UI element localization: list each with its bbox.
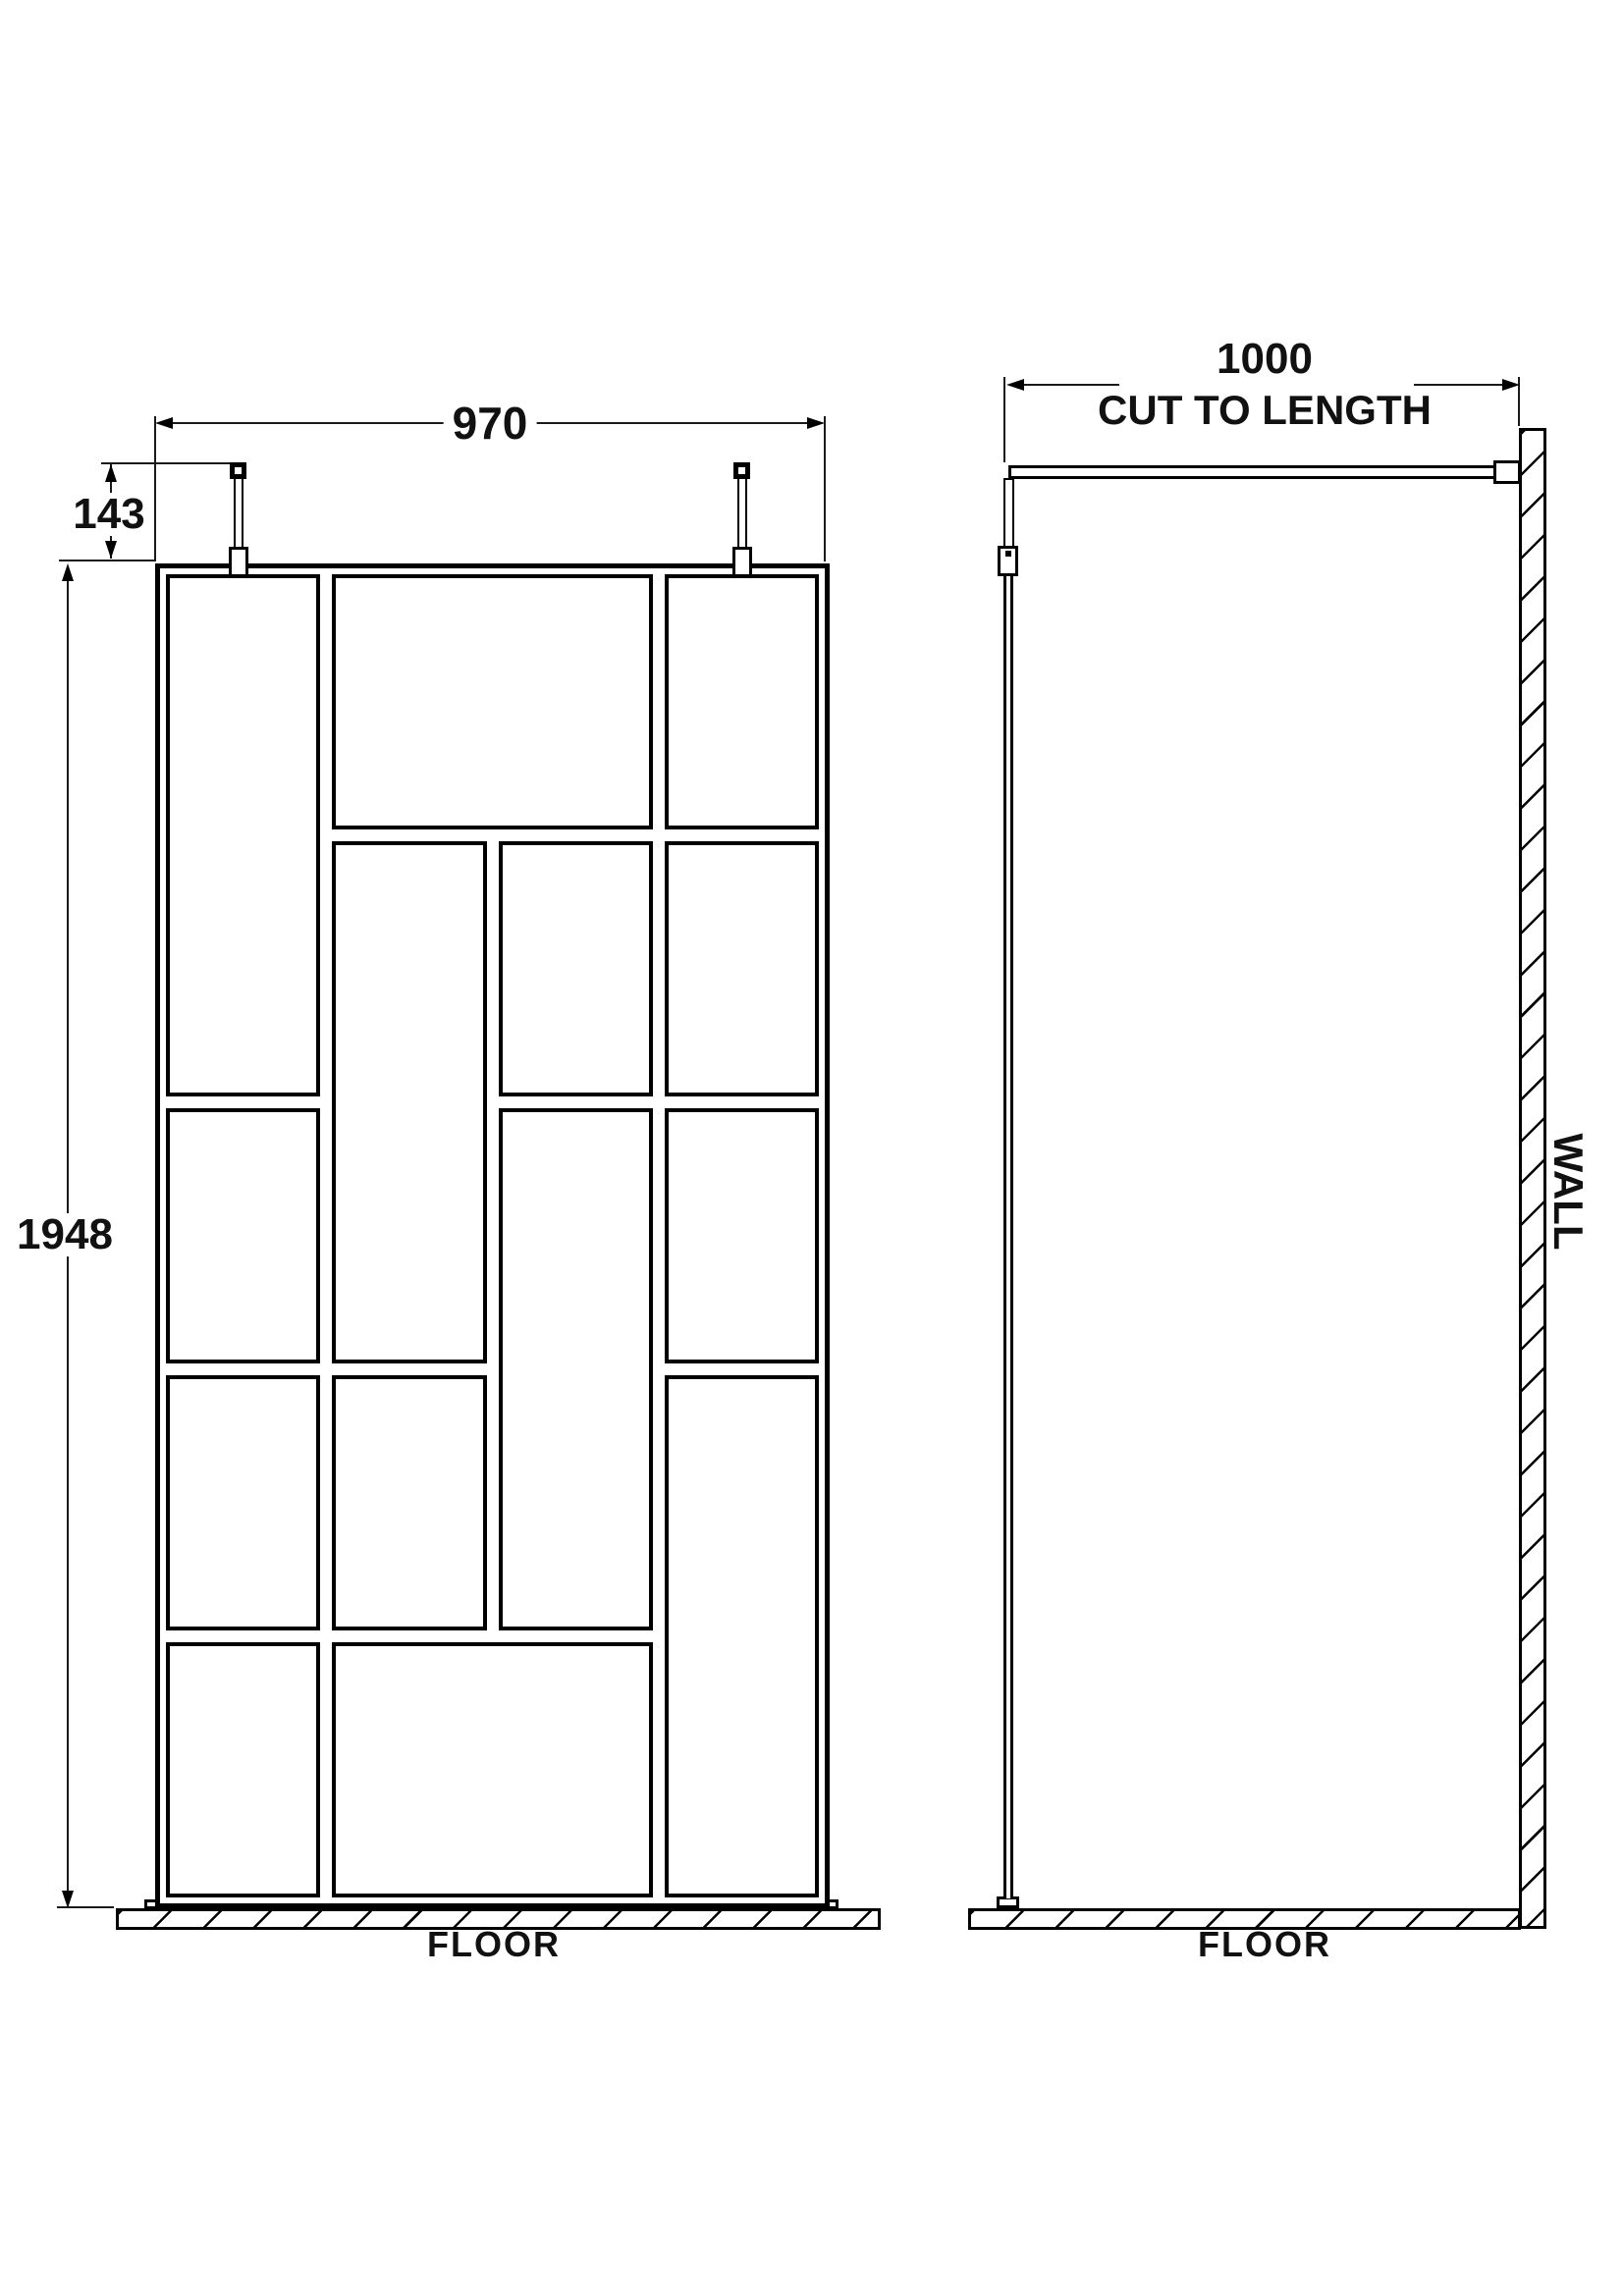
glass-pane	[332, 841, 486, 1363]
dim-1948-arrow-up-icon	[62, 563, 74, 581]
right-post-shaft	[737, 477, 747, 550]
glass-pane	[665, 574, 819, 829]
dim-970-arrow-left-icon	[155, 417, 173, 429]
dim-1948-label: 1948	[13, 1213, 117, 1256]
dim-970-label: 970	[444, 400, 537, 446]
pane-grid	[160, 568, 825, 1903]
glass-edge-profile	[1003, 575, 1013, 1898]
cut-to-length-label: CUT TO LENGTH	[1089, 390, 1440, 431]
floor-front-label: FLOOR	[427, 1927, 561, 1962]
glass-pane	[665, 841, 819, 1096]
left-post-shaft	[234, 477, 243, 550]
glass-pane	[166, 1108, 320, 1363]
side-post-shaft	[1003, 478, 1014, 548]
glass-pane	[665, 1108, 819, 1363]
dim-143-arrow-up-icon	[105, 464, 117, 482]
dim-970-arrow-right-icon	[807, 417, 825, 429]
glass-pane	[499, 841, 653, 1096]
dim-143-ext-top	[101, 462, 232, 464]
glass-pane	[166, 1375, 320, 1630]
floor-side-label: FLOOR	[1198, 1927, 1331, 1962]
support-arm	[1008, 465, 1497, 479]
glass-pane	[166, 1642, 320, 1897]
glass-pane	[166, 574, 320, 1096]
left-post-bracket	[229, 547, 248, 577]
glass-pane	[332, 574, 653, 829]
wall-bracket	[1493, 460, 1521, 484]
dim-1000-line-right	[1414, 384, 1505, 386]
dim-143-ext-bottom	[59, 560, 155, 561]
glass-clamp-pin	[1005, 551, 1011, 557]
glass-pane	[665, 1375, 819, 1897]
dim-1948-arrow-down-icon	[62, 1891, 74, 1908]
glass-pane	[332, 1375, 486, 1630]
dim-1000-label: 1000	[1208, 338, 1322, 381]
glass-pane	[499, 1108, 653, 1630]
glass-pane	[332, 1642, 653, 1897]
dim-970-ext-right	[824, 416, 826, 561]
dim-143-label: 143	[69, 493, 148, 536]
dim-1000-arrow-right-icon	[1502, 379, 1520, 391]
wall-label: WALL	[1547, 1134, 1589, 1251]
dim-1000-arrow-left-icon	[1006, 379, 1024, 391]
dim-143-arrow-down-icon	[105, 541, 117, 559]
drawing-sheet: 970 143 1948 FLOOR 1000 CUT TO LENGTH WA…	[0, 0, 1623, 2296]
dim-1000-ext-left	[1003, 377, 1005, 462]
right-post-bracket	[732, 547, 752, 577]
dim-970-ext-left	[154, 416, 156, 561]
wall-hatch	[1519, 428, 1546, 1929]
front-screen-frame	[155, 563, 830, 1908]
dim-1000-line-left	[1021, 384, 1119, 386]
